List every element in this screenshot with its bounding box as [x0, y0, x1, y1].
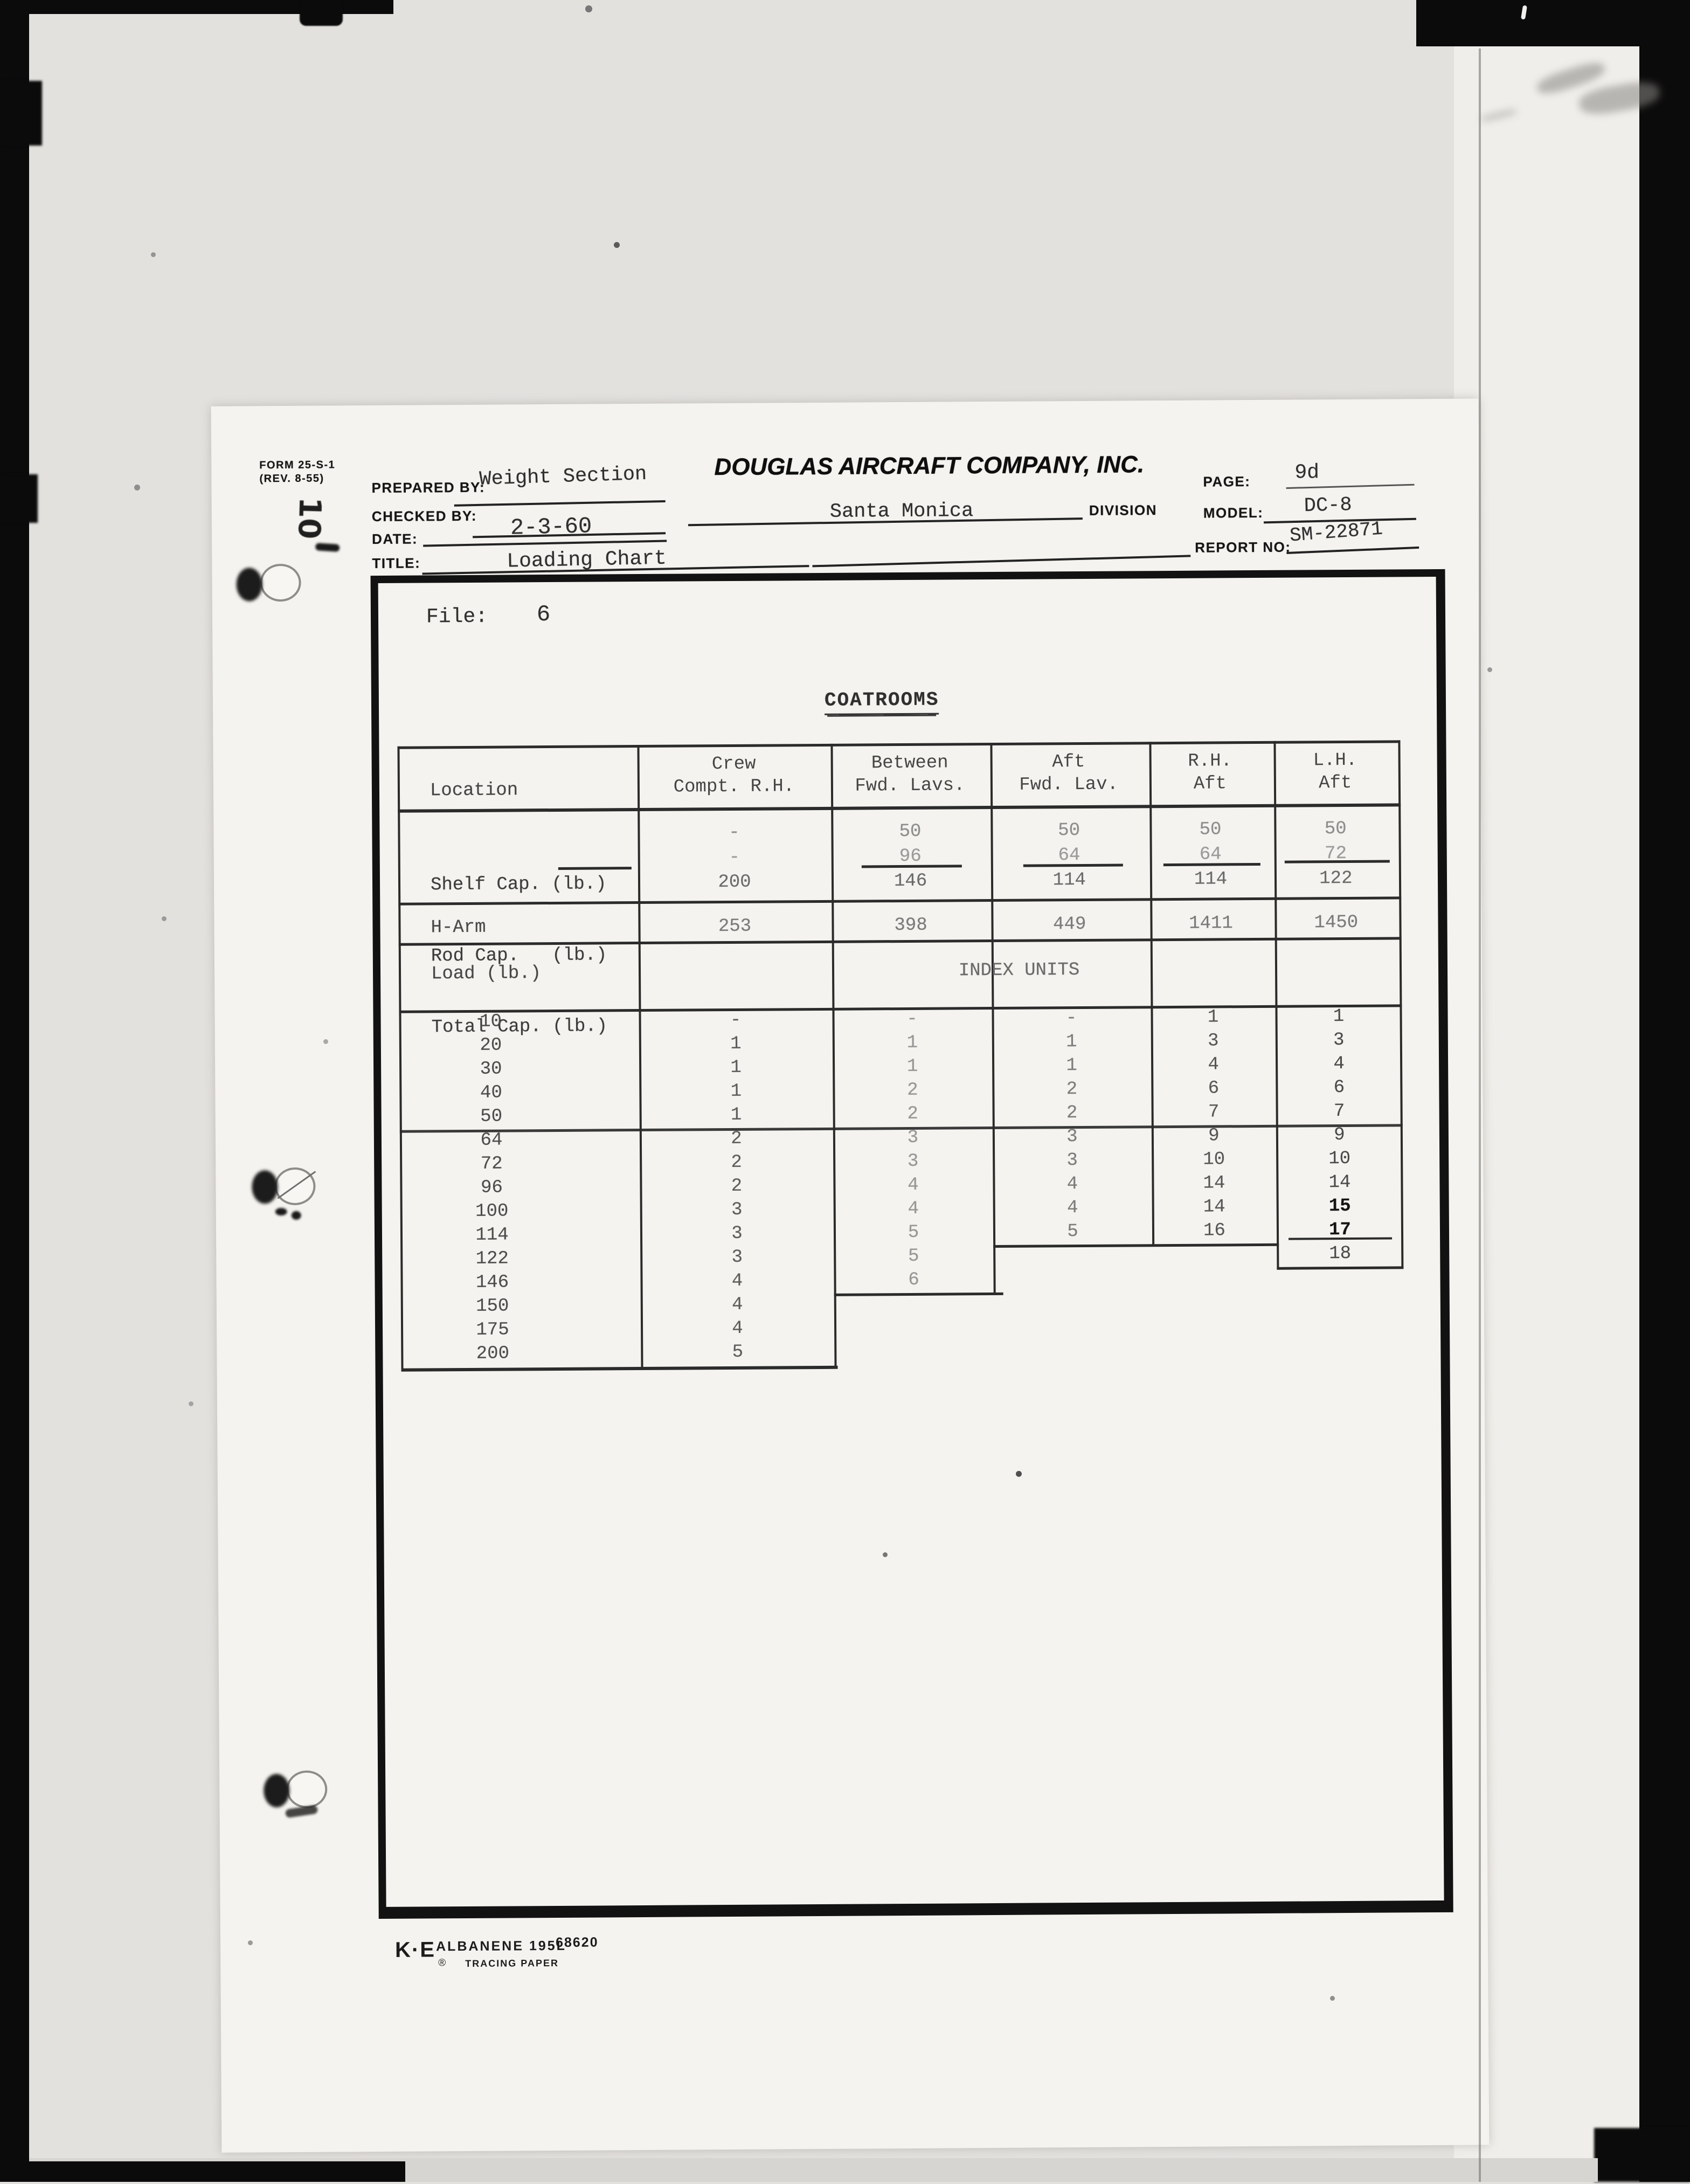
index-column-crew-compt-rh: -11112223334445 [639, 1008, 834, 1365]
index-cell: 4 [640, 1269, 834, 1294]
scan-edge-blob [0, 81, 42, 146]
footer-stock-number: 68620 [556, 1935, 599, 1951]
page-label: PAGE: [1203, 473, 1250, 490]
shelf-cap-value: 50 [989, 818, 1148, 843]
punch-hole-smudge [252, 1170, 278, 1204]
column-header-line1: Crew [638, 752, 830, 776]
registered-trademark-icon: ® [438, 1957, 446, 1969]
shelf-cap-value: 50 [1148, 818, 1273, 842]
index-cell: 10 [1276, 1146, 1403, 1171]
load-value: 10 [428, 1010, 552, 1034]
shelf-cap-values: - 50 50 50 50 [638, 817, 1398, 845]
load-value: 30 [429, 1057, 553, 1081]
index-cell: 1 [1151, 1005, 1275, 1029]
index-cell: 4 [993, 1195, 1152, 1220]
shelf-cap-value: 50 [1272, 817, 1399, 841]
index-cell: 6 [834, 1268, 993, 1293]
division-label: DIVISION [1089, 502, 1157, 519]
total-cap-value: 122 [1273, 866, 1400, 890]
load-value: 64 [430, 1128, 553, 1152]
harm-value: 253 [638, 914, 831, 939]
index-cell: 2 [833, 1102, 993, 1126]
index-cell: 3 [640, 1198, 834, 1222]
index-cell: 5 [993, 1219, 1152, 1244]
index-cell: - [832, 1007, 992, 1032]
form-number-line1: FORM 25-S-1 [259, 458, 335, 472]
harm-value: 1411 [1149, 911, 1273, 936]
shelf-cap-value: 50 [830, 819, 989, 844]
index-cell: 3 [1151, 1029, 1276, 1053]
load-value: 150 [431, 1294, 555, 1318]
model-value: DC-8 [1304, 494, 1352, 517]
load-value: 96 [430, 1176, 553, 1200]
shelf-cap-label: Shelf Cap. (lb.) [431, 872, 607, 897]
index-cell: 6 [1276, 1075, 1402, 1100]
scan-edge-bottom-left [0, 2161, 405, 2182]
total-cap-value: 114 [990, 868, 1148, 893]
column-header-rh-aft: R.H. Aft [1148, 750, 1272, 796]
load-value: 200 [431, 1342, 555, 1366]
harm-value: 449 [991, 912, 1149, 937]
load-value: 146 [430, 1270, 554, 1295]
checked-by-label: CHECKED BY: [372, 508, 477, 525]
index-cell: 1 [992, 1029, 1151, 1054]
page-value: 9d [1294, 461, 1319, 484]
index-cell: 1 [640, 1103, 833, 1128]
scanned-sheet: FORM 25-S-1 (REV. 8-55) PREPARED BY: Wei… [0, 0, 1690, 2184]
index-cell: 18 [1277, 1241, 1403, 1266]
index-cell: - [639, 1008, 832, 1033]
column-headers: Crew Compt. R.H. Between Fwd. Lavs. Aft … [638, 749, 1398, 799]
index-column-aft-fwd-lav: -112233445 [992, 1006, 1152, 1244]
index-cell: 1 [1275, 1004, 1402, 1028]
title-label: TITLE: [372, 555, 420, 572]
index-units-header: INDEX UNITS [639, 958, 1400, 983]
column-header-line1: L.H. [1272, 749, 1398, 772]
form-number-line2: (REV. 8-55) [259, 472, 335, 486]
index-cell: 5 [641, 1340, 834, 1365]
column-header-location: Location [430, 780, 518, 801]
column-header-line2: Aft [1272, 771, 1398, 794]
prepared-by-label: PREPARED BY: [371, 479, 485, 496]
index-cell: 5 [834, 1244, 993, 1269]
index-cell: 5 [834, 1220, 993, 1245]
index-cell: 3 [833, 1125, 993, 1150]
harm-value: 398 [831, 913, 990, 938]
index-cell: 2 [993, 1101, 1152, 1125]
form-number: FORM 25-S-1 (REV. 8-55) [259, 458, 335, 486]
shelf-cap-value: - [638, 820, 830, 845]
index-cell: 4 [834, 1197, 993, 1221]
column-header-crew-compt-rh: Crew Compt. R.H. [638, 752, 830, 799]
page-edge-seam [1479, 49, 1481, 2182]
load-value: 122 [430, 1247, 554, 1271]
capacity-end-line-lh [1277, 1266, 1403, 1269]
index-cell: 2 [833, 1078, 992, 1103]
rod-cap-value: 64 [990, 843, 1148, 868]
date-value: 2-3-60 [510, 513, 592, 541]
load-value: 175 [431, 1318, 555, 1342]
load-column-header: Load (lb.) [431, 963, 541, 984]
scan-edge-right [1639, 0, 1690, 2182]
scan-edge-left [0, 0, 29, 2182]
table-bottom-line [401, 1366, 838, 1372]
table-border-line [398, 803, 1401, 812]
index-cell: 2 [640, 1126, 833, 1151]
index-cell: 6 [1151, 1076, 1276, 1101]
harm-values: 253 398 449 1411 1450 [638, 910, 1399, 939]
index-cell: 1 [992, 1053, 1151, 1078]
scan-edge-blob [300, 0, 343, 26]
index-cell: 3 [833, 1149, 993, 1174]
index-cell: 2 [640, 1150, 833, 1175]
index-cell: - [992, 1006, 1151, 1031]
index-column-between-fwd-lavs: -11223344556 [832, 1007, 993, 1293]
index-cell: 1 [639, 1079, 833, 1104]
scan-edge-blob [0, 474, 38, 523]
index-cell: 3 [640, 1221, 834, 1246]
ke-logo: K·E [395, 1938, 435, 1962]
footer-product-name: ALBANENE 195L [436, 1938, 566, 1954]
index-cell: 3 [640, 1245, 834, 1270]
load-value: 50 [430, 1104, 553, 1129]
index-cell: 4 [641, 1316, 834, 1341]
harm-row-label: H-Arm [431, 917, 486, 938]
punch-hole [260, 564, 301, 602]
rod-cap-value: 96 [831, 844, 990, 869]
column-header-line2: Aft [1148, 772, 1272, 796]
handwritten-margin-note: 10 [291, 496, 327, 540]
rod-cap-values: - 96 64 64 72 [638, 841, 1399, 870]
total-cap-values: 200 146 114 114 122 [638, 866, 1399, 895]
index-cell: 3 [993, 1124, 1152, 1149]
index-cell: 1 [833, 1054, 992, 1079]
index-cell: 15 [1277, 1194, 1403, 1218]
load-value: 20 [429, 1033, 553, 1058]
rod-cap-value: - [638, 845, 831, 870]
rod-cap-value: 64 [1148, 842, 1273, 867]
ink-mark [315, 543, 340, 552]
report-no-label: REPORT NO: [1195, 539, 1291, 556]
index-cell: 7 [1276, 1099, 1403, 1123]
punch-hole [286, 1771, 327, 1808]
total-cap-value: 200 [638, 870, 831, 895]
footer-paper-type: TRACING PAPER [465, 1958, 559, 1969]
load-value: 40 [429, 1081, 553, 1105]
column-header-line2: Fwd. Lav. [989, 773, 1148, 797]
index-cell: 2 [992, 1077, 1151, 1102]
index-cell: 14 [1276, 1170, 1403, 1194]
index-cell: 9 [1152, 1124, 1276, 1148]
total-cap-value: 114 [1148, 867, 1273, 891]
ink-mark [292, 1211, 301, 1220]
index-cell: 4 [833, 1173, 993, 1198]
index-cell: 9 [1276, 1123, 1403, 1147]
index-cell: 4 [1151, 1053, 1276, 1077]
rod-cap-value: 72 [1272, 841, 1399, 866]
column-header-line1: Between [830, 751, 989, 775]
index-cell: 14 [1152, 1195, 1277, 1219]
index-cell: 14 [1152, 1171, 1276, 1195]
harm-value: 1450 [1273, 910, 1400, 935]
scan-noise-specks [0, 0, 3, 3]
index-cell: 4 [993, 1172, 1152, 1197]
punch-hole-smudge [236, 568, 262, 601]
index-column-lh-aft: 1346791014151718 [1275, 1004, 1403, 1266]
model-label: MODEL: [1203, 504, 1264, 522]
file-label: File: [426, 605, 488, 629]
column-header-line1: Aft [989, 750, 1148, 774]
index-cell: 16 [1152, 1219, 1277, 1243]
index-cell: 17 [1277, 1218, 1403, 1242]
index-column-rh-aft: 13467910141416 [1151, 1005, 1277, 1243]
index-cell: 3 [1276, 1028, 1402, 1052]
load-values-column: 1020304050647296100114122146150175200 [428, 1010, 555, 1366]
coatrooms-table: Location Crew Compt. R.H. Between Fwd. L… [397, 740, 1404, 1379]
ink-mark [275, 1208, 287, 1215]
total-cap-value: 146 [831, 869, 990, 894]
scan-edge-bottom-right [1594, 2128, 1690, 2182]
index-cell: 7 [1152, 1100, 1276, 1124]
column-header-line1: R.H. [1148, 750, 1272, 773]
capacity-sum-bar [558, 867, 632, 870]
punch-hole-smudge [264, 1774, 289, 1807]
column-header-between-fwd-lavs: Between Fwd. Lavs. [830, 751, 990, 798]
column-header-line2: Compt. R.H. [638, 775, 830, 799]
company-name: DOUGLAS AIRCRAFT COMPANY, INC. [670, 451, 1188, 481]
file-number: 6 [537, 602, 551, 627]
index-cell: 1 [639, 1055, 833, 1080]
index-cell: 4 [1276, 1052, 1402, 1076]
load-value: 72 [430, 1152, 553, 1176]
table-title: COATROOMS [825, 689, 939, 715]
index-cell: 10 [1152, 1148, 1276, 1172]
date-label: DATE: [372, 531, 418, 548]
index-cell: 1 [639, 1032, 833, 1056]
column-header-lh-aft: L.H. Aft [1272, 749, 1398, 794]
index-cell: 4 [641, 1293, 834, 1317]
column-header-line2: Fwd. Lavs. [830, 774, 989, 798]
index-cell: 2 [640, 1174, 833, 1199]
capacity-end-line-aft-rh [993, 1243, 1279, 1248]
column-header-aft-fwd-lav: Aft Fwd. Lav. [989, 750, 1148, 797]
index-cell: 1 [833, 1031, 992, 1055]
capacity-end-line-between [834, 1293, 1003, 1296]
load-value: 100 [430, 1199, 554, 1224]
index-cell: 3 [993, 1148, 1152, 1173]
load-value: 114 [430, 1223, 554, 1247]
